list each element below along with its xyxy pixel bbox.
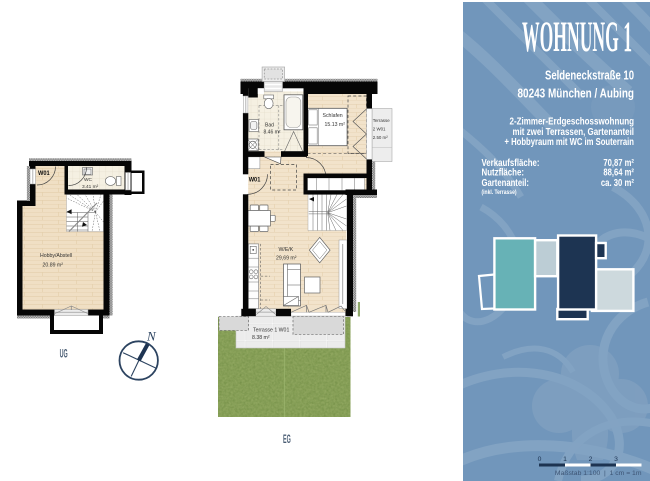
- svg-text:8.38 m²: 8.38 m²: [252, 335, 270, 341]
- svg-text:3.41 m²: 3.41 m²: [82, 184, 99, 190]
- svg-text:UG: UG: [60, 346, 68, 360]
- svg-text:Hobby/Abstell: Hobby/Abstell: [40, 253, 72, 259]
- svg-text:W/E/K: W/E/K: [279, 247, 294, 253]
- svg-text:W01: W01: [249, 178, 261, 184]
- svg-text:Bad: Bad: [265, 123, 274, 129]
- svg-text:15.13 m²: 15.13 m²: [325, 122, 346, 128]
- svg-text:29,69 m²: 29,69 m²: [276, 256, 297, 262]
- svg-text:2: 2: [589, 456, 593, 463]
- svg-text:Maßstab 1:100 | 1 cm = 1m: Maßstab 1:100 | 1 cm = 1m: [555, 470, 642, 477]
- svg-text:EG: EG: [283, 431, 291, 445]
- svg-text:N: N: [146, 329, 157, 344]
- svg-text:3: 3: [614, 456, 618, 463]
- svg-text:0: 0: [538, 456, 542, 463]
- svg-text:2 W01: 2 W01: [373, 127, 386, 132]
- svg-text:1: 1: [563, 456, 567, 463]
- svg-text:WC: WC: [84, 177, 93, 183]
- svg-text:W01: W01: [38, 171, 50, 177]
- svg-text:Schlafen: Schlafen: [323, 113, 343, 119]
- svg-text:2.50 m²: 2.50 m²: [373, 135, 388, 140]
- svg-text:Terrasse: Terrasse: [373, 118, 390, 123]
- svg-text:20.89 m²: 20.89 m²: [43, 263, 64, 269]
- svg-text:8.46 m²: 8.46 m²: [264, 130, 281, 136]
- svg-text:Terrasse 1 W01: Terrasse 1 W01: [253, 328, 289, 334]
